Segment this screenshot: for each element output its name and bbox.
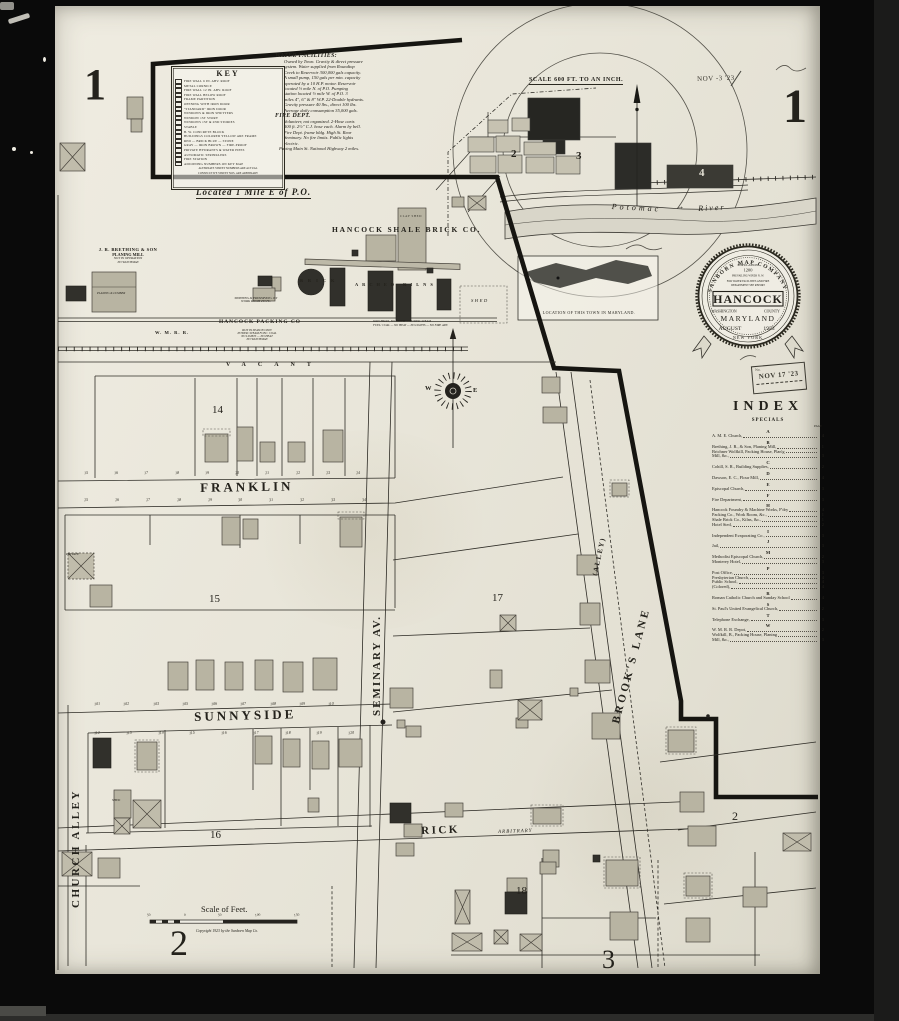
overview-town-blocks bbox=[468, 98, 733, 189]
index-entry-leader bbox=[745, 490, 817, 491]
house-number: 105 bbox=[182, 701, 189, 707]
index-entry-leader bbox=[764, 558, 817, 559]
seal-population-value: 1200 bbox=[744, 268, 754, 273]
seal-county-left: WASHINGTON bbox=[711, 310, 736, 314]
received-stamp-rule bbox=[756, 380, 802, 385]
block-number-14: 14 bbox=[212, 405, 223, 417]
index-entry-leader bbox=[786, 452, 817, 453]
facilities-report: WATER FACILITIES: Owned by Town. Gravity… bbox=[275, 53, 447, 152]
house-number: 118 bbox=[284, 730, 290, 736]
index-entry-leader bbox=[762, 521, 817, 522]
house-number: 107 bbox=[240, 701, 247, 707]
index-entry-page: 2 bbox=[818, 607, 824, 612]
index-entry-leader bbox=[743, 437, 817, 438]
house-number: 106 bbox=[211, 701, 218, 707]
house-number: 26 bbox=[115, 497, 120, 503]
house-number: 34 bbox=[362, 497, 367, 503]
house-number: 101 bbox=[94, 701, 101, 707]
sheet-number-right: 1 bbox=[783, 82, 807, 132]
overview-district-4: 4 bbox=[699, 168, 705, 180]
index-entry: Jail,3 bbox=[712, 544, 824, 549]
seal-date-month: AUGUST bbox=[719, 326, 742, 332]
index-entry-name: (Colored), bbox=[712, 585, 730, 590]
key-title: KEY bbox=[175, 69, 281, 78]
inset-caption: LOCATION OF THIS TOWN IN MARYLAND. bbox=[524, 311, 654, 315]
house-number: 22 bbox=[295, 470, 300, 476]
house-number: 117 bbox=[252, 730, 258, 736]
packing-shipping-label: SHIPPING & PRESERVING 1ST WORK ROOM 2'D … bbox=[220, 297, 292, 304]
house-number: 30 bbox=[238, 497, 243, 503]
block-number-16: 16 bbox=[210, 830, 221, 842]
index-entry-name: Hotel Sted, bbox=[712, 523, 732, 528]
sheet-number-left: 1 bbox=[84, 62, 106, 108]
index-entry: Dawson, E. C., Flour Mill,4 bbox=[712, 476, 824, 481]
index-page-label: PAGE bbox=[712, 424, 822, 428]
index-title: INDEX bbox=[712, 399, 824, 415]
scale-tick: 100 bbox=[255, 913, 261, 918]
index-entry-leader bbox=[770, 468, 817, 469]
packing-co-name: HANCOCK PACKING CO bbox=[219, 320, 301, 326]
index-sections: AA. M. E. Church,4BBrething, J. R., & So… bbox=[712, 429, 824, 643]
paving-note: Paving Main St. National Highway 2 miles… bbox=[279, 146, 447, 152]
index-entry-name: Independent Evaporating Co., bbox=[712, 534, 765, 539]
block-number-15: 15 bbox=[209, 594, 220, 606]
seal-winds: PREVAILING WINDS N. W. bbox=[732, 275, 764, 278]
index-entry-leader bbox=[778, 636, 817, 637]
compass-west: W bbox=[425, 386, 432, 393]
index-entry: Cohill, S. R., Building Supplies,2 bbox=[712, 465, 824, 470]
compass-rose bbox=[438, 328, 469, 448]
index-entry-leader bbox=[720, 547, 817, 548]
brick-note-2: FUEL: COAL — NO HEAT — NO LIGHTS — NO FI… bbox=[373, 324, 448, 327]
house-number: 20 bbox=[235, 470, 240, 476]
index-entry-leader bbox=[739, 583, 817, 584]
index-entry-page: 4 bbox=[818, 434, 824, 439]
index-entry: Telephone Exchange,3 bbox=[712, 618, 824, 623]
index-entry-page: 4 bbox=[818, 596, 824, 601]
index-entry-page: 3 bbox=[818, 534, 824, 539]
index-entry-leader bbox=[760, 479, 817, 480]
street-rick: RICK bbox=[421, 825, 460, 838]
house-number: 114 bbox=[157, 730, 163, 736]
index-entry-name: A. M. E. Church, bbox=[712, 434, 742, 439]
adjoining-page-right: 3 bbox=[602, 946, 615, 973]
index-entry-name: Mill, &c., bbox=[712, 638, 729, 643]
key-footnote: CONSECUTIVE STREET NOS. ARE ARBITRARY bbox=[175, 172, 281, 176]
index-entry-leader bbox=[768, 516, 817, 517]
street-seminary-av: SEMINARY AV. bbox=[372, 615, 384, 716]
index-entry: Mill, &c.,3 bbox=[712, 638, 824, 643]
dashed-outlines bbox=[135, 286, 712, 898]
index-entry: Episcopal Church,3 bbox=[712, 487, 824, 492]
scale-tick: 0 bbox=[183, 913, 185, 917]
index-entry-leader bbox=[743, 500, 817, 501]
map-key: KEY FIRE WALL 6 IN. ABV. ROOFMETAL CORNI… bbox=[171, 66, 285, 190]
house-number: 32 bbox=[300, 497, 305, 503]
house-number: 31 bbox=[269, 497, 274, 503]
private-note: PRIVATE bbox=[66, 553, 79, 557]
house-number: 110 bbox=[328, 701, 334, 707]
house-number: 29 bbox=[207, 497, 212, 503]
index-entry-leader bbox=[789, 511, 817, 512]
house-number: 33 bbox=[331, 497, 336, 503]
house-number: 115 bbox=[189, 730, 195, 736]
scanned-map-sheet: SANBORN MAP COMPANY POPULATION 1200 PREV… bbox=[0, 0, 899, 1021]
index-entry-page: 3 bbox=[818, 498, 824, 503]
block-number-2-right: 2 bbox=[732, 810, 738, 823]
seal-city: NEW YORK bbox=[733, 335, 763, 340]
house-number: 119 bbox=[316, 730, 322, 736]
index-entry: Hotel Sted,2 bbox=[712, 523, 824, 528]
index-entry: (Colored),4 bbox=[712, 585, 824, 590]
date-stamp: NOV -3 '23 bbox=[697, 75, 735, 84]
index-entry-page: 4 bbox=[818, 476, 824, 481]
index-entry-name: Jail, bbox=[712, 544, 719, 549]
street-vacant: VACANT bbox=[226, 362, 323, 368]
house-number: 18 bbox=[174, 470, 179, 476]
house-number: 16 bbox=[114, 470, 119, 476]
index-entry-page: 3 bbox=[818, 618, 824, 623]
seal-note-2: DEPARTMENT SEE REPORT bbox=[731, 284, 765, 287]
sanborn-seal: SANBORN MAP COMPANY POPULATION 1200 PREV… bbox=[693, 245, 803, 359]
index-entry-leader bbox=[731, 588, 817, 589]
house-number: 15 bbox=[84, 470, 89, 476]
scale-tick-labels: 50050100150 bbox=[147, 913, 299, 917]
clay-shed-label: CLAY SHED bbox=[400, 215, 422, 218]
index-entry-leader bbox=[750, 578, 817, 579]
street-sunnyside: SUNNYSIDE bbox=[194, 707, 296, 723]
index-entry-leader bbox=[733, 526, 817, 527]
index-entry-leader bbox=[791, 599, 817, 600]
house-number: 120 bbox=[348, 730, 355, 736]
seal-town: HANCOCK bbox=[713, 292, 783, 306]
franklin-north-numbers: 15161718192021222324 bbox=[84, 470, 360, 475]
index-entry: Roman Catholic Church and Sunday School4 bbox=[712, 596, 824, 601]
house-number: 17 bbox=[144, 470, 149, 476]
brick-co-name: HANCOCK SHALE BRICK CO. bbox=[332, 226, 481, 234]
index-entry-name: Fire Department, bbox=[712, 498, 742, 503]
index-entry: Monterey Hotel,3 bbox=[712, 560, 824, 565]
house-number: 27 bbox=[145, 497, 150, 503]
seal-population-label: POPULATION bbox=[738, 263, 759, 267]
seal-date-year: 1923 bbox=[763, 326, 774, 332]
seal-state: MARYLAND bbox=[721, 314, 776, 323]
index-entry-name: Episcopal Church, bbox=[712, 487, 744, 492]
house-number: 21 bbox=[265, 470, 270, 476]
index-entry-page: 2 bbox=[818, 523, 824, 528]
index-entry-page: 3 bbox=[818, 638, 824, 643]
franklin-south-numbers: 25262728293031323334 bbox=[84, 497, 366, 502]
adjoining-page-left: 2 bbox=[170, 925, 188, 963]
map-dot bbox=[706, 714, 710, 718]
index-panel: INDEX SPECIALS PAGE AA. M. E. Church,4BB… bbox=[712, 399, 824, 643]
index-entry-page: 3 bbox=[818, 560, 824, 565]
index-entry-page: 4 bbox=[818, 585, 824, 590]
street-church-alley: CHURCH ALLEY bbox=[71, 789, 83, 908]
planing-building-label: PLANING & LUMBER bbox=[97, 292, 125, 295]
compass-east: E bbox=[473, 388, 477, 395]
index-entry-page: 3 bbox=[818, 544, 824, 549]
railroad-label: W. M. R. R. bbox=[155, 331, 189, 336]
street-franklin: FRANKLIN bbox=[200, 479, 294, 494]
index-entry: Fire Department,3 bbox=[712, 498, 824, 503]
index-entry-name: Telephone Exchange, bbox=[712, 618, 750, 623]
index-entry-leader bbox=[779, 610, 817, 611]
received-stamp: No. NOV 17 '23 bbox=[751, 362, 807, 395]
index-entry-leader bbox=[730, 641, 817, 642]
river-name-2: River bbox=[698, 204, 726, 214]
index-entry-page: 3 bbox=[818, 454, 824, 459]
index-entry: Mill, &c.,3 bbox=[712, 454, 824, 459]
scale-tick: 150 bbox=[293, 913, 299, 918]
block-number-17: 17 bbox=[492, 593, 503, 605]
seal-county-right: COUNTY bbox=[764, 310, 780, 314]
key-footnote: ALTERNATE STREET NUMBERS ARE ACTUAL bbox=[175, 167, 281, 171]
index-entry-page: 1 bbox=[818, 445, 824, 450]
brick-kiln-word-1: BRICK bbox=[300, 279, 339, 284]
index-entry-name: Roman Catholic Church and Sunday School bbox=[712, 596, 790, 601]
index-entry: A. M. E. Church,4 bbox=[712, 434, 824, 439]
index-entry: St. Paul's United Evangelical Church,2 bbox=[712, 607, 824, 612]
brick-kiln-word-2: ARCHED KILNS bbox=[355, 283, 437, 288]
map-dot bbox=[381, 720, 386, 725]
index-entry-leader bbox=[742, 563, 817, 564]
brick-shed-label: SHED bbox=[471, 299, 489, 304]
planing-mill-line4: NO WATCHMAN bbox=[88, 261, 168, 264]
index-entry-name: Cohill, S. R., Building Supplies, bbox=[712, 465, 769, 470]
house-number: 109 bbox=[299, 701, 306, 707]
index-entry-page: 2 bbox=[818, 628, 824, 633]
house-number: 102 bbox=[123, 701, 130, 707]
house-number: 28 bbox=[176, 497, 181, 503]
index-entry-page: 2 bbox=[818, 465, 824, 470]
index-entry-name: Monterey Hotel, bbox=[712, 560, 741, 565]
house-number: 103 bbox=[152, 701, 159, 707]
index-entry-leader bbox=[730, 457, 817, 458]
overview-scale-label: SCALE 600 FT. TO AN INCH. bbox=[529, 77, 623, 85]
sunnyside-south-numbers: 112113114115116117118119120 bbox=[94, 730, 354, 735]
shipping-line-2: WORK ROOM 2'D FL. bbox=[220, 300, 292, 303]
index-entry-name: St. Paul's United Evangelical Church, bbox=[712, 607, 778, 612]
index-entry-leader bbox=[751, 620, 817, 621]
seal-note-1: FOR WATER FACILITIES AND FIRE bbox=[727, 280, 770, 283]
scale-tick: 50 bbox=[218, 913, 222, 917]
house-number: 23 bbox=[325, 470, 330, 476]
index-entry-leader bbox=[766, 536, 817, 537]
key-entry: ADJOINING NUMBERS ON KEY MAP bbox=[175, 162, 281, 167]
sunnyside-north-numbers: 101102103105106107108109110 bbox=[94, 701, 334, 706]
index-entry-name: Mill, &c., bbox=[712, 454, 729, 459]
packing-co-notes: RUN IN SEASON ONLY POWER: STEAM FUEL: CO… bbox=[219, 329, 295, 342]
river-flow-arrow: → bbox=[676, 203, 684, 212]
block-number-18: 18 bbox=[516, 886, 527, 898]
house-number: 112 bbox=[94, 730, 100, 736]
overview-district-2: 2 bbox=[511, 149, 517, 161]
overview-district-3: 3 bbox=[576, 151, 582, 163]
index-entry-name: Dawson, E. C., Flour Mill, bbox=[712, 476, 759, 481]
house-number: 116 bbox=[221, 730, 227, 736]
house-number: 113 bbox=[125, 730, 131, 736]
scale-tick: 50 bbox=[147, 913, 151, 917]
index-entry-page: 3 bbox=[818, 487, 824, 492]
house-number: 19 bbox=[205, 470, 210, 476]
copyright-line: Copyright 1923 by the Sanborn Map Co. bbox=[196, 929, 258, 933]
index-subtitle: SPECIALS bbox=[712, 418, 824, 423]
shed-label-block16: SHED bbox=[112, 799, 120, 802]
house-number: 25 bbox=[84, 497, 89, 503]
planing-mill-label: J. R. BRETHING & SON PLANING MILL NOT IN… bbox=[88, 248, 168, 264]
house-number: 108 bbox=[269, 701, 276, 707]
packing-note-4: NO WATCHMAN bbox=[219, 338, 295, 341]
index-entry: Independent Evaporating Co.,3 bbox=[712, 534, 824, 539]
house-number: 24 bbox=[356, 470, 361, 476]
